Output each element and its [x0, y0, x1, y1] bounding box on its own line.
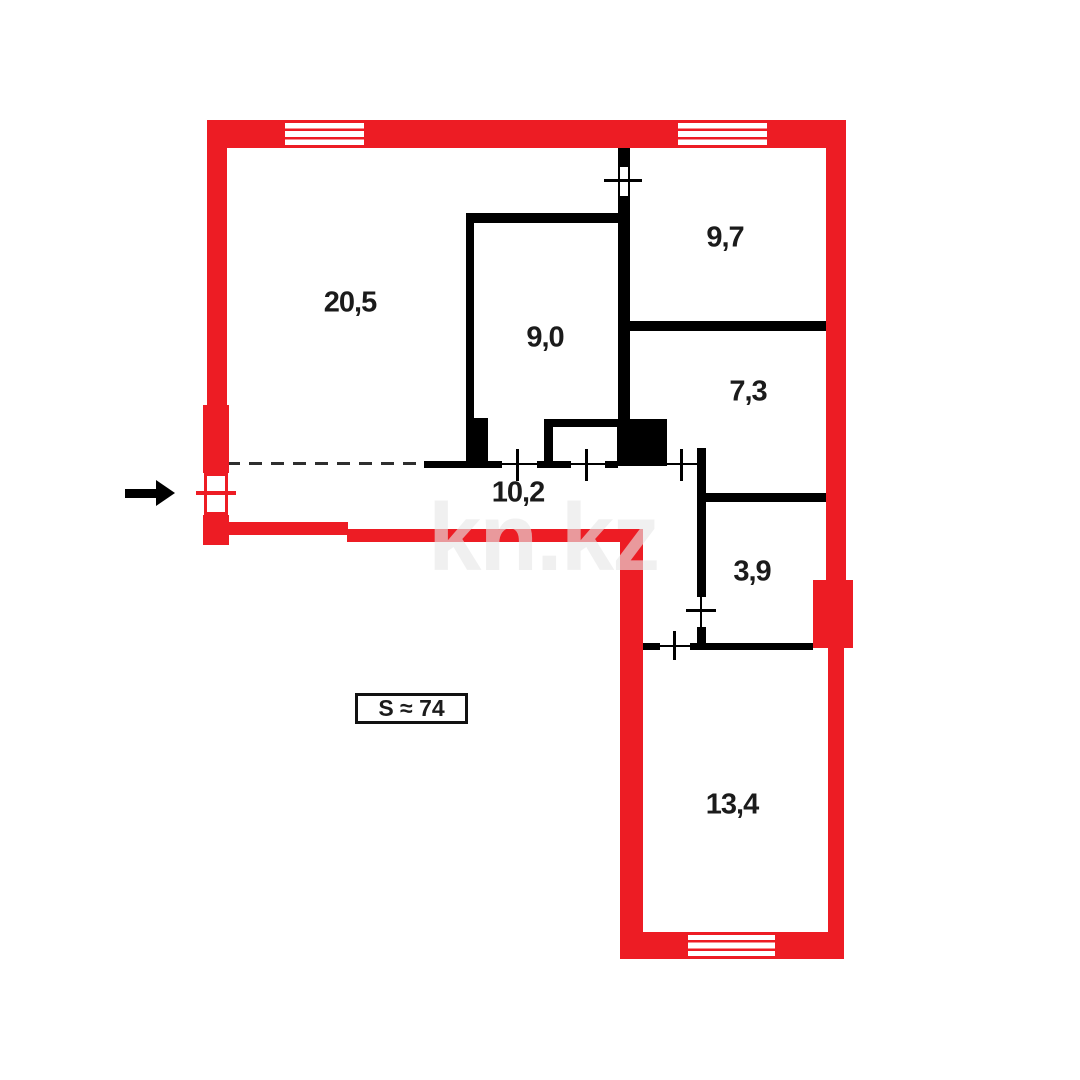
window-icon-top-right	[678, 120, 767, 148]
exterior-wall-room7-left	[620, 529, 643, 959]
exterior-wall-right	[826, 120, 846, 580]
room73-door-tick	[680, 449, 683, 481]
closet-door-leaf	[571, 463, 605, 465]
label-bathroom: 3,9	[733, 556, 770, 589]
exterior-wall-right-lower	[828, 648, 844, 959]
kitchen-wall-top	[466, 213, 618, 223]
vent-window-tick	[604, 179, 642, 182]
label-room-13-4: 13,4	[706, 789, 758, 822]
bathroom-door-tick	[686, 609, 716, 612]
kitchen-wall-left	[466, 223, 474, 418]
entrance-door-tick	[196, 491, 236, 495]
label-room-7-3: 7,3	[729, 376, 766, 409]
entrance-arrow-head-icon	[156, 480, 175, 506]
closet-wall-top	[544, 419, 618, 427]
window-icon-top-left	[285, 120, 364, 148]
label-room-living: 20,5	[324, 287, 376, 320]
window-icon-bottom	[688, 932, 775, 959]
corridor-wall-seg1	[424, 461, 502, 468]
entrance-arrow-icon	[125, 489, 157, 498]
label-room-kitchen: 9,0	[526, 322, 563, 355]
corridor-wall-seg2	[537, 461, 571, 468]
floorplan-canvas: 20,5 9,0 9,7 7,3 10,2 3,9 13,4 S ≈ 74 kn…	[0, 0, 1080, 1080]
total-area-badge: S ≈ 74	[355, 693, 468, 724]
kitchen-door-leaf	[502, 463, 537, 465]
closet-door-tick	[585, 449, 588, 481]
exterior-wall-left-pilaster	[203, 405, 229, 473]
label-room-9-7: 9,7	[706, 222, 743, 255]
exterior-wall-right-pilaster	[813, 580, 853, 648]
interior-wall-block	[617, 419, 667, 466]
room134-wall-top-right	[690, 643, 813, 650]
open-boundary-dashed-line	[227, 462, 424, 465]
hall-wall-bottom-left	[227, 522, 348, 535]
room134-door-tick	[673, 631, 676, 660]
room134-wall-top-left	[643, 643, 660, 650]
exterior-wall-left	[207, 120, 227, 405]
bathroom-door-leaf	[700, 597, 702, 627]
interior-wall-97-73	[618, 321, 826, 331]
exterior-wall-left-below-door	[203, 515, 229, 545]
label-corridor: 10,2	[492, 477, 544, 510]
bathroom-wall-left-upper	[697, 448, 706, 597]
interior-wall-73-39	[706, 493, 826, 502]
